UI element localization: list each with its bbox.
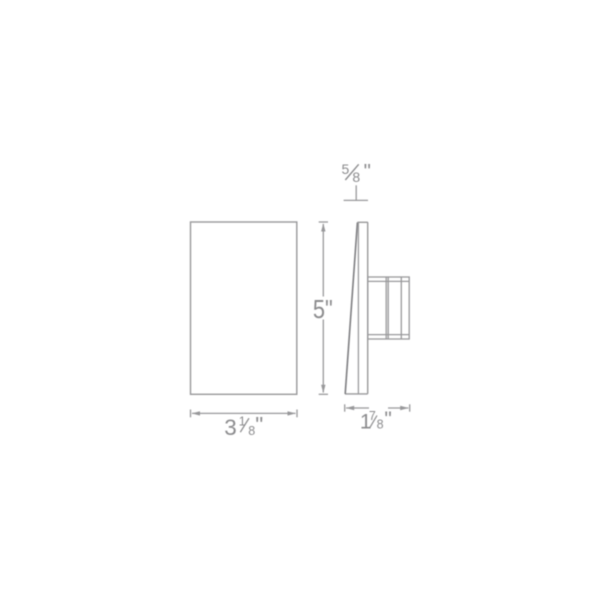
svg-text:": " — [384, 408, 391, 431]
svg-text:5: 5 — [342, 161, 350, 177]
svg-text:": " — [364, 160, 371, 183]
svg-text:": " — [255, 413, 263, 438]
svg-text:8: 8 — [352, 169, 360, 185]
svg-text:3: 3 — [224, 415, 237, 440]
svg-text:8: 8 — [377, 417, 384, 431]
svg-text:1: 1 — [239, 415, 246, 429]
svg-text:": " — [325, 295, 333, 324]
svg-text:7: 7 — [369, 409, 376, 423]
svg-text:8: 8 — [248, 424, 255, 438]
svg-text:5: 5 — [313, 295, 325, 324]
